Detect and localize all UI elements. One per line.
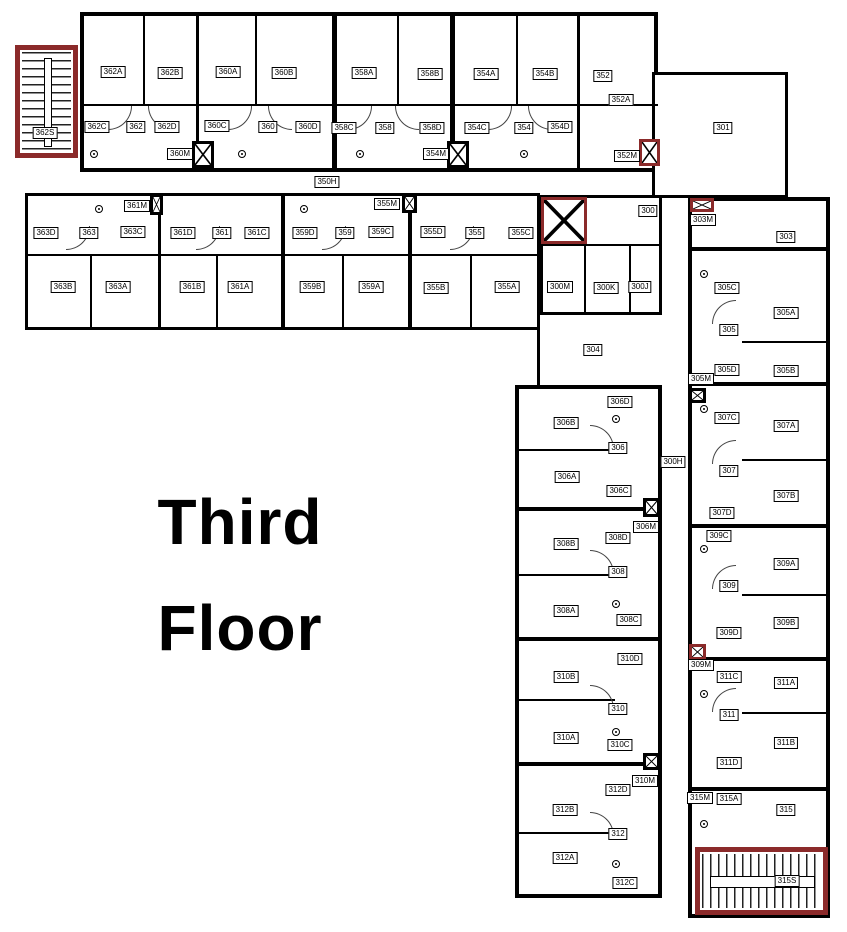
room-label-300: 300: [638, 205, 657, 217]
room-label-312C: 312C: [612, 877, 637, 889]
room-label-362: 362: [126, 121, 145, 133]
wall: [332, 12, 337, 172]
shaft-305M: [689, 388, 706, 403]
room-label-310D: 310D: [617, 653, 642, 665]
room-label-309B: 309B: [774, 617, 799, 629]
shaft-355M: [402, 194, 417, 213]
wall: [516, 12, 518, 105]
fixture-icon: [612, 415, 620, 423]
room-label-355M: 355M: [374, 198, 400, 210]
room-label-361A: 361A: [228, 281, 253, 293]
room-label-309C: 309C: [706, 530, 731, 542]
room-label-360M: 360M: [167, 148, 193, 160]
room-label-306M: 306M: [633, 521, 659, 533]
fixture-icon: [612, 600, 620, 608]
room-label-359: 359: [335, 227, 354, 239]
room-label-307: 307: [719, 465, 738, 477]
shaft-x-icon: [153, 197, 160, 212]
shaft-x-icon: [450, 144, 466, 165]
wall: [255, 12, 257, 105]
room-label-310A: 310A: [554, 732, 579, 744]
fixture-icon: [612, 728, 620, 736]
room-label-309A: 309A: [774, 558, 799, 570]
room-label-308D: 308D: [605, 532, 630, 544]
room-label-362D: 362D: [154, 121, 179, 133]
shaft-361M: [150, 194, 163, 215]
room-label-306D: 306D: [607, 396, 632, 408]
wall: [742, 712, 830, 714]
wall: [537, 330, 540, 385]
room-301-outline: [652, 72, 788, 198]
room-label-315M: 315M: [687, 792, 713, 804]
room-label-359D: 359D: [292, 227, 317, 239]
room-label-360: 360: [258, 121, 277, 133]
shaft-354M: [447, 141, 469, 168]
shaft-303M: [690, 198, 714, 212]
room-label-355D: 355D: [420, 226, 445, 238]
room-label-305B: 305B: [774, 365, 799, 377]
room-label-305: 305: [719, 324, 738, 336]
wall: [688, 247, 830, 251]
room-label-305A: 305A: [774, 307, 799, 319]
shaft-x-icon: [692, 391, 703, 400]
room-label-355A: 355A: [495, 281, 520, 293]
wall: [90, 256, 92, 330]
room-label-359A: 359A: [359, 281, 384, 293]
room-label-300M: 300M: [547, 281, 573, 293]
room-label-354A: 354A: [474, 68, 499, 80]
fixture-icon: [700, 820, 708, 828]
room-label-354C: 354C: [464, 122, 489, 134]
room-label-312: 312: [608, 828, 627, 840]
room-label-305C: 305C: [714, 282, 739, 294]
shaft-360M: [192, 141, 214, 168]
room-label-307B: 307B: [774, 490, 799, 502]
stairwell-362S: [15, 45, 78, 158]
wall: [515, 449, 615, 451]
room-label-361: 361: [212, 227, 231, 239]
room-label-300K: 300K: [594, 282, 619, 294]
wall: [688, 524, 830, 528]
room-label-361B: 361B: [180, 281, 205, 293]
shaft-x-icon: [544, 200, 584, 241]
wall: [216, 256, 218, 330]
shaft-306M: [643, 498, 660, 517]
room-label-306B: 306B: [554, 417, 579, 429]
room-label-315A: 315A: [717, 793, 742, 805]
room-label-311C: 311C: [717, 671, 742, 683]
room-label-309: 309: [719, 580, 738, 592]
floor-title-line1: Third: [50, 470, 430, 576]
room-label-309D: 309D: [716, 627, 741, 639]
room-label-308: 308: [608, 566, 627, 578]
fixture-icon: [520, 150, 528, 158]
room-label-305D: 305D: [714, 364, 739, 376]
room-label-311B: 311B: [774, 737, 798, 749]
room-label-359C: 359C: [368, 226, 393, 238]
fixture-icon: [90, 150, 98, 158]
room-label-300H: 300H: [660, 456, 685, 468]
wall: [342, 256, 344, 330]
room-label-363B: 363B: [51, 281, 76, 293]
room-label-315S: 315S: [775, 875, 800, 887]
wall: [397, 12, 399, 105]
fixture-icon: [612, 860, 620, 868]
room-label-307A: 307A: [774, 420, 799, 432]
wall: [408, 193, 412, 330]
room-label-307C: 307C: [714, 412, 739, 424]
room-label-359B: 359B: [300, 281, 325, 293]
room-label-358A: 358A: [352, 67, 377, 79]
room-label-360A: 360A: [216, 66, 241, 78]
room-label-304: 304: [583, 344, 602, 356]
room-label-312B: 312B: [553, 804, 578, 816]
shaft-x-icon: [692, 647, 703, 657]
room-label-362B: 362B: [158, 67, 183, 79]
room-label-360C: 360C: [204, 120, 229, 132]
room-label-310: 310: [608, 703, 627, 715]
room-label-362A: 362A: [101, 66, 126, 78]
room-label-358: 358: [375, 122, 394, 134]
fixture-icon: [700, 690, 708, 698]
room-label-354M: 354M: [423, 148, 449, 160]
room-label-308B: 308B: [554, 538, 579, 550]
room-label-303: 303: [776, 231, 795, 243]
room-label-303M: 303M: [690, 214, 716, 226]
room-label-362S: 362S: [33, 127, 58, 139]
wall: [143, 12, 145, 105]
room-label-363D: 363D: [33, 227, 58, 239]
room-label-300J: 300J: [628, 281, 651, 293]
shaft-x-icon: [405, 197, 414, 210]
wall: [515, 574, 615, 576]
fixture-icon: [700, 545, 708, 553]
wall: [577, 12, 580, 172]
floor-title: Third Floor: [50, 470, 430, 681]
wall: [281, 193, 285, 330]
fixture-icon: [700, 405, 708, 413]
room-label-352: 352: [593, 70, 612, 82]
room-label-311D: 311D: [717, 757, 742, 769]
room-label-310M: 310M: [632, 775, 658, 787]
stairwell-315S: [695, 847, 828, 915]
room-label-310B: 310B: [554, 671, 579, 683]
fixture-icon: [700, 270, 708, 278]
room-label-307D: 307D: [709, 507, 734, 519]
room-label-312A: 312A: [553, 852, 578, 864]
shaft-300: [541, 197, 587, 244]
room-label-352M: 352M: [614, 150, 640, 162]
room-label-308C: 308C: [616, 614, 641, 626]
wall: [515, 762, 662, 766]
wall: [742, 459, 830, 461]
fixture-icon: [238, 150, 246, 158]
room-label-355C: 355C: [508, 227, 533, 239]
right-wing-outline: [688, 197, 830, 918]
wall: [540, 244, 662, 246]
room-label-310C: 310C: [607, 739, 632, 751]
fixture-icon: [356, 150, 364, 158]
room-label-301: 301: [713, 122, 732, 134]
shaft-x-icon: [642, 142, 657, 163]
shaft-x-icon: [646, 501, 657, 514]
room-label-361C: 361C: [244, 227, 269, 239]
wall: [688, 787, 830, 791]
stair-landing: [710, 876, 815, 887]
room-label-306A: 306A: [555, 471, 580, 483]
floor-plan: 362A362B360A360B358A358B354A354B352352A3…: [0, 0, 847, 932]
room-label-355: 355: [465, 227, 484, 239]
room-label-352A: 352A: [609, 94, 634, 106]
wall: [515, 637, 662, 641]
room-label-311A: 311A: [774, 677, 798, 689]
room-label-308A: 308A: [554, 605, 579, 617]
room-label-363: 363: [79, 227, 98, 239]
room-label-315: 315: [776, 804, 795, 816]
room-label-354: 354: [514, 122, 533, 134]
room-label-358D: 358D: [419, 122, 444, 134]
room-label-355B: 355B: [424, 282, 449, 294]
room-label-361D: 361D: [170, 227, 195, 239]
shaft-x-icon: [646, 756, 657, 767]
room-label-354B: 354B: [533, 68, 558, 80]
room-label-350H: 350H: [314, 176, 339, 188]
shaft-x-icon: [693, 201, 711, 209]
room-label-363C: 363C: [120, 226, 145, 238]
fixture-icon: [300, 205, 308, 213]
room-label-358B: 358B: [418, 68, 443, 80]
room-label-311: 311: [720, 709, 739, 721]
room-label-358C: 358C: [331, 122, 356, 134]
room-label-306C: 306C: [606, 485, 631, 497]
wall: [742, 341, 830, 343]
room-label-309M: 309M: [688, 659, 714, 671]
shaft-309M: [689, 644, 706, 660]
room-label-361M: 361M: [124, 200, 150, 212]
shaft-352M: [639, 139, 660, 166]
room-label-362C: 362C: [84, 121, 109, 133]
wall: [742, 594, 830, 596]
room-label-363A: 363A: [106, 281, 131, 293]
room-label-306: 306: [608, 442, 627, 454]
floor-title-line2: Floor: [50, 576, 430, 682]
room-label-360D: 360D: [295, 121, 320, 133]
shaft-310M: [643, 753, 660, 770]
wall: [470, 256, 472, 330]
room-label-354D: 354D: [547, 121, 572, 133]
shaft-x-icon: [195, 144, 211, 165]
fixture-icon: [95, 205, 103, 213]
wall: [584, 246, 586, 315]
room-label-312D: 312D: [605, 784, 630, 796]
room-label-360B: 360B: [272, 67, 297, 79]
room-label-305M: 305M: [688, 373, 714, 385]
wall: [515, 507, 662, 511]
lower-wing-outline: [515, 385, 662, 898]
